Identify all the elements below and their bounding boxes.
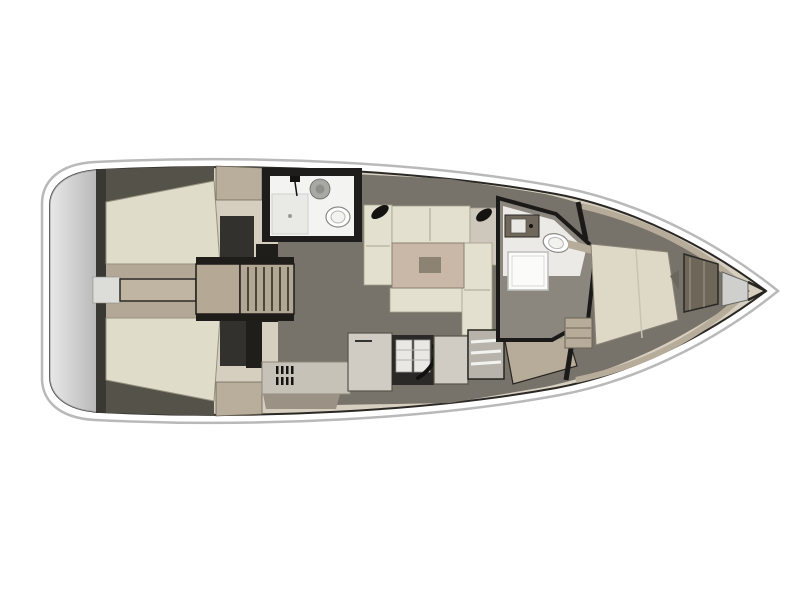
vberth-steps (565, 318, 592, 348)
settee-port (392, 206, 470, 243)
aft-head-toilet-seat (331, 211, 345, 223)
swim-platform (50, 170, 100, 412)
vent-grate-bar (281, 366, 284, 374)
forward-head-faucet (529, 224, 533, 228)
helm-seat-starboard (216, 382, 262, 416)
saloon-table-inset (419, 257, 441, 273)
stove-fiddle (471, 351, 501, 353)
cockpit-table (196, 264, 240, 314)
cockpit-walkway (120, 279, 196, 301)
transom-passage (93, 277, 120, 303)
vent-grate-bar (291, 366, 294, 374)
aft-head (262, 168, 362, 242)
cockpit-frame-bottom (196, 314, 294, 321)
helm-seat-port (216, 166, 262, 200)
main-bulkhead-lower (246, 316, 262, 368)
settee-forward (462, 243, 492, 335)
vent-grate-bar (286, 377, 289, 385)
layout-plan-canvas (0, 0, 800, 600)
stove-fiddle (471, 362, 501, 364)
vent-grate-bar (276, 366, 279, 374)
vent-grate-bar (291, 377, 294, 385)
aft-head-sink-bowl (316, 185, 325, 194)
forward-shower-pan (508, 252, 548, 290)
cockpit-frame-top (196, 257, 294, 264)
vent-grate-bar (276, 377, 279, 385)
vent-grate-bar (281, 377, 284, 385)
settee-center (390, 288, 468, 312)
bow-wardrobe (684, 254, 718, 312)
shower-drain (288, 214, 292, 218)
vent-grate-bar (286, 366, 289, 374)
galley-counter (262, 362, 350, 394)
galley-cabinet (434, 336, 468, 384)
helm-console-port (220, 216, 254, 264)
forward-head-sink (511, 219, 526, 233)
shower-mixer-icon (290, 176, 300, 182)
yacht-layout-plan (0, 0, 800, 600)
sink-rack-port (396, 340, 412, 372)
galley-lockers (263, 394, 340, 409)
